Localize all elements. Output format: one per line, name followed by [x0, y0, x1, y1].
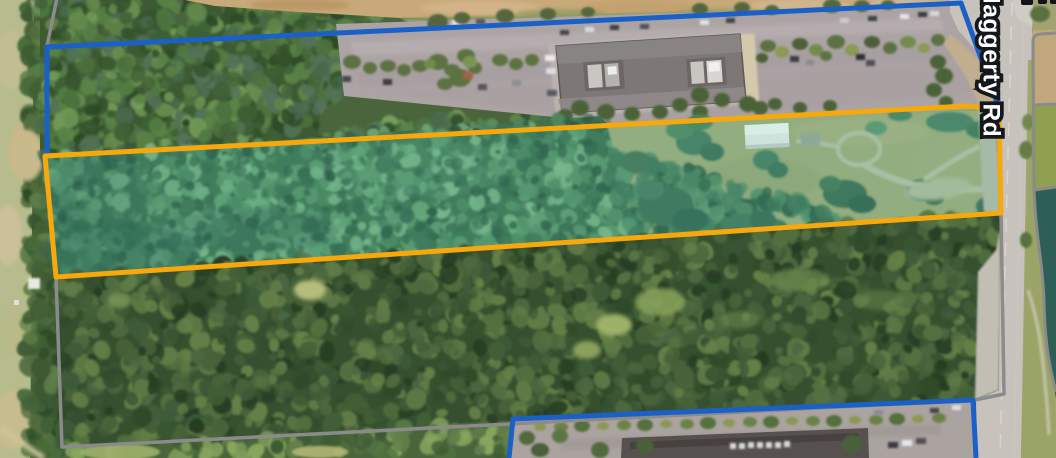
svg-text:Haggerty Rd: Haggerty Rd [978, 0, 1005, 137]
